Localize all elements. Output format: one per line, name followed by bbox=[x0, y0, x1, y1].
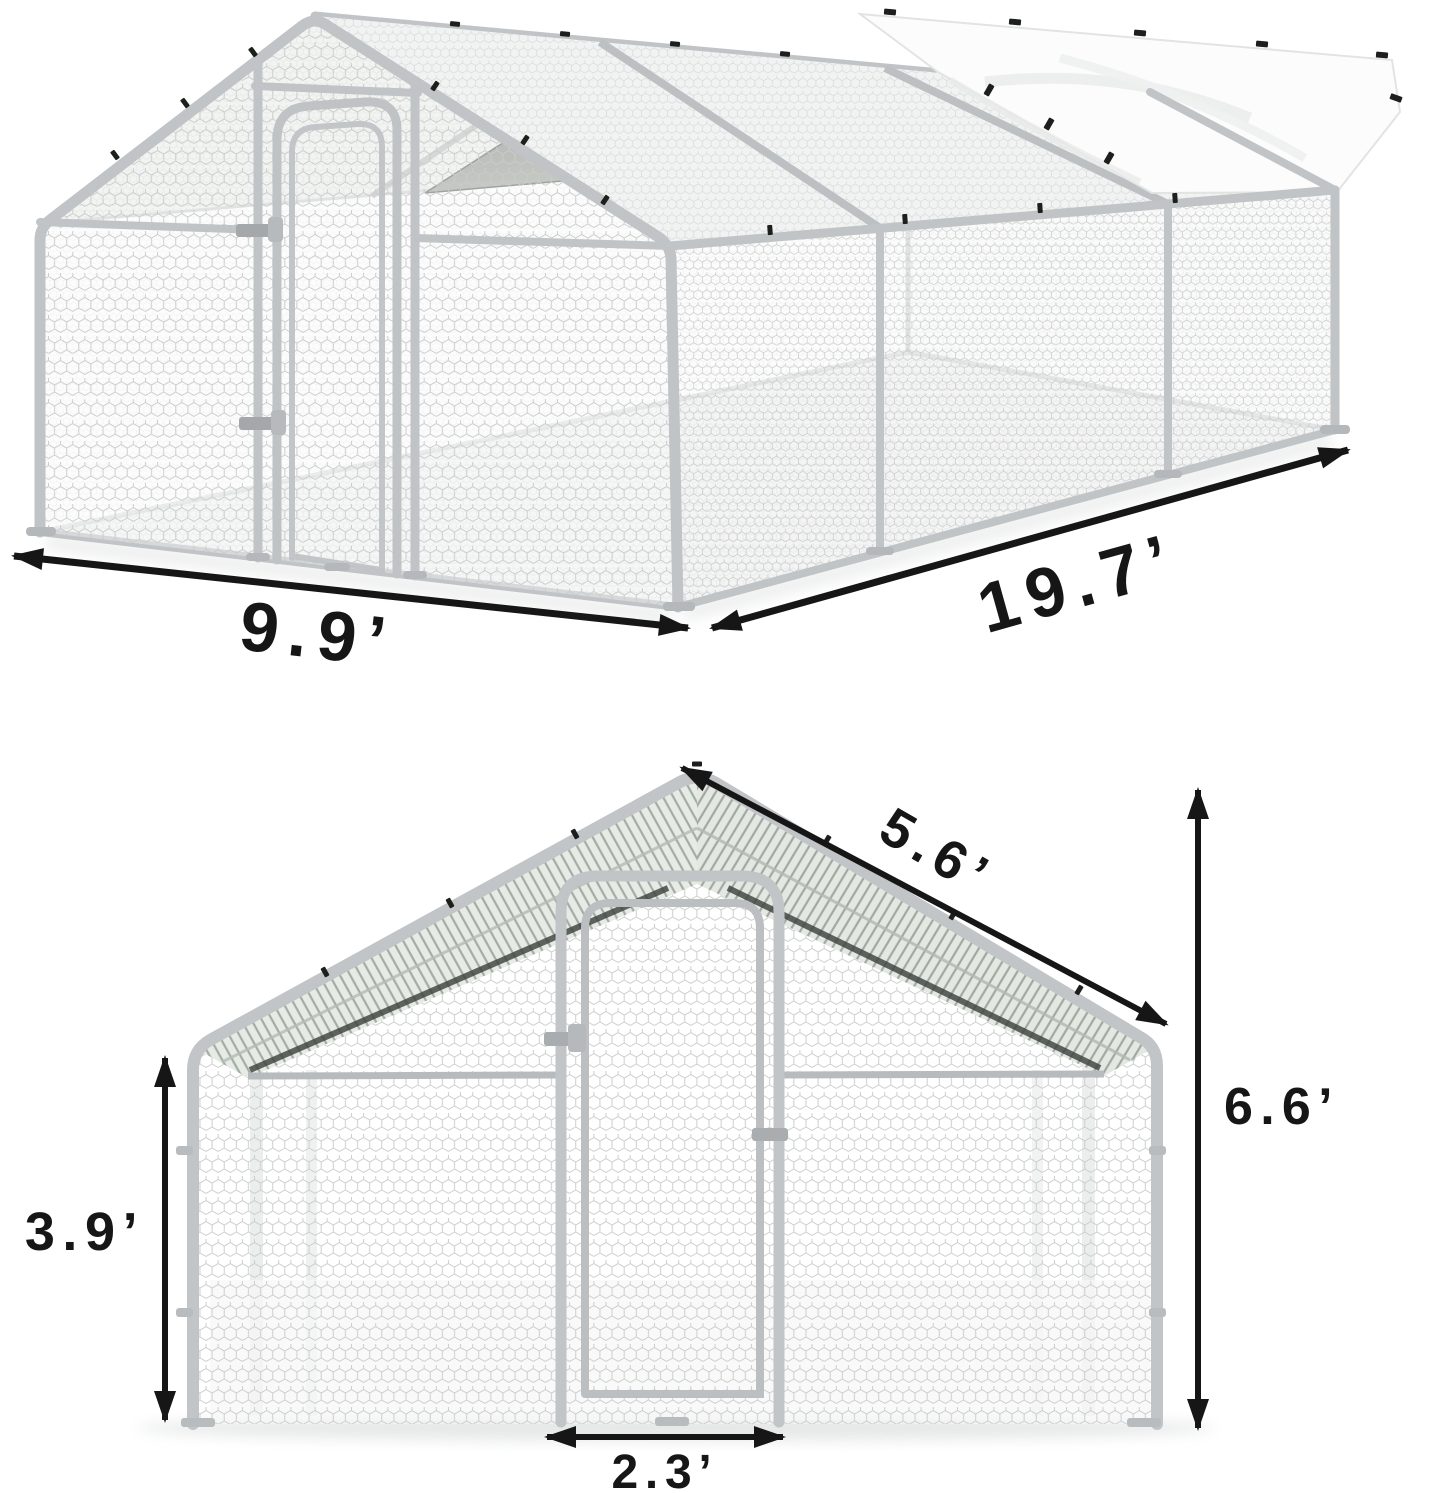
product-image-canvas: 9.9’ 19.7’ bbox=[0, 0, 1442, 1493]
dim-door-width: 2.3’ bbox=[547, 1437, 783, 1493]
dim-label-wall-height: 3.9’ bbox=[25, 1202, 145, 1262]
front-view: 5.6’ 6.6’ 3.9’ 2.3’ bbox=[25, 762, 1340, 1493]
door-foot-plate bbox=[655, 1417, 689, 1426]
dim-label-total-height: 6.6’ bbox=[1224, 1078, 1340, 1136]
dim-total-height: 6.6’ bbox=[1198, 790, 1340, 1428]
dim-label-door-width: 2.3’ bbox=[612, 1446, 719, 1493]
perspective-view: 9.9’ 19.7’ bbox=[14, 8, 1403, 681]
dim-wall-height: 3.9’ bbox=[25, 1058, 165, 1420]
dim-label-width: 9.9’ bbox=[236, 587, 400, 682]
dimension-diagram-svg: 9.9’ 19.7’ bbox=[0, 0, 1442, 1493]
dim-label-length: 19.7’ bbox=[969, 518, 1187, 648]
